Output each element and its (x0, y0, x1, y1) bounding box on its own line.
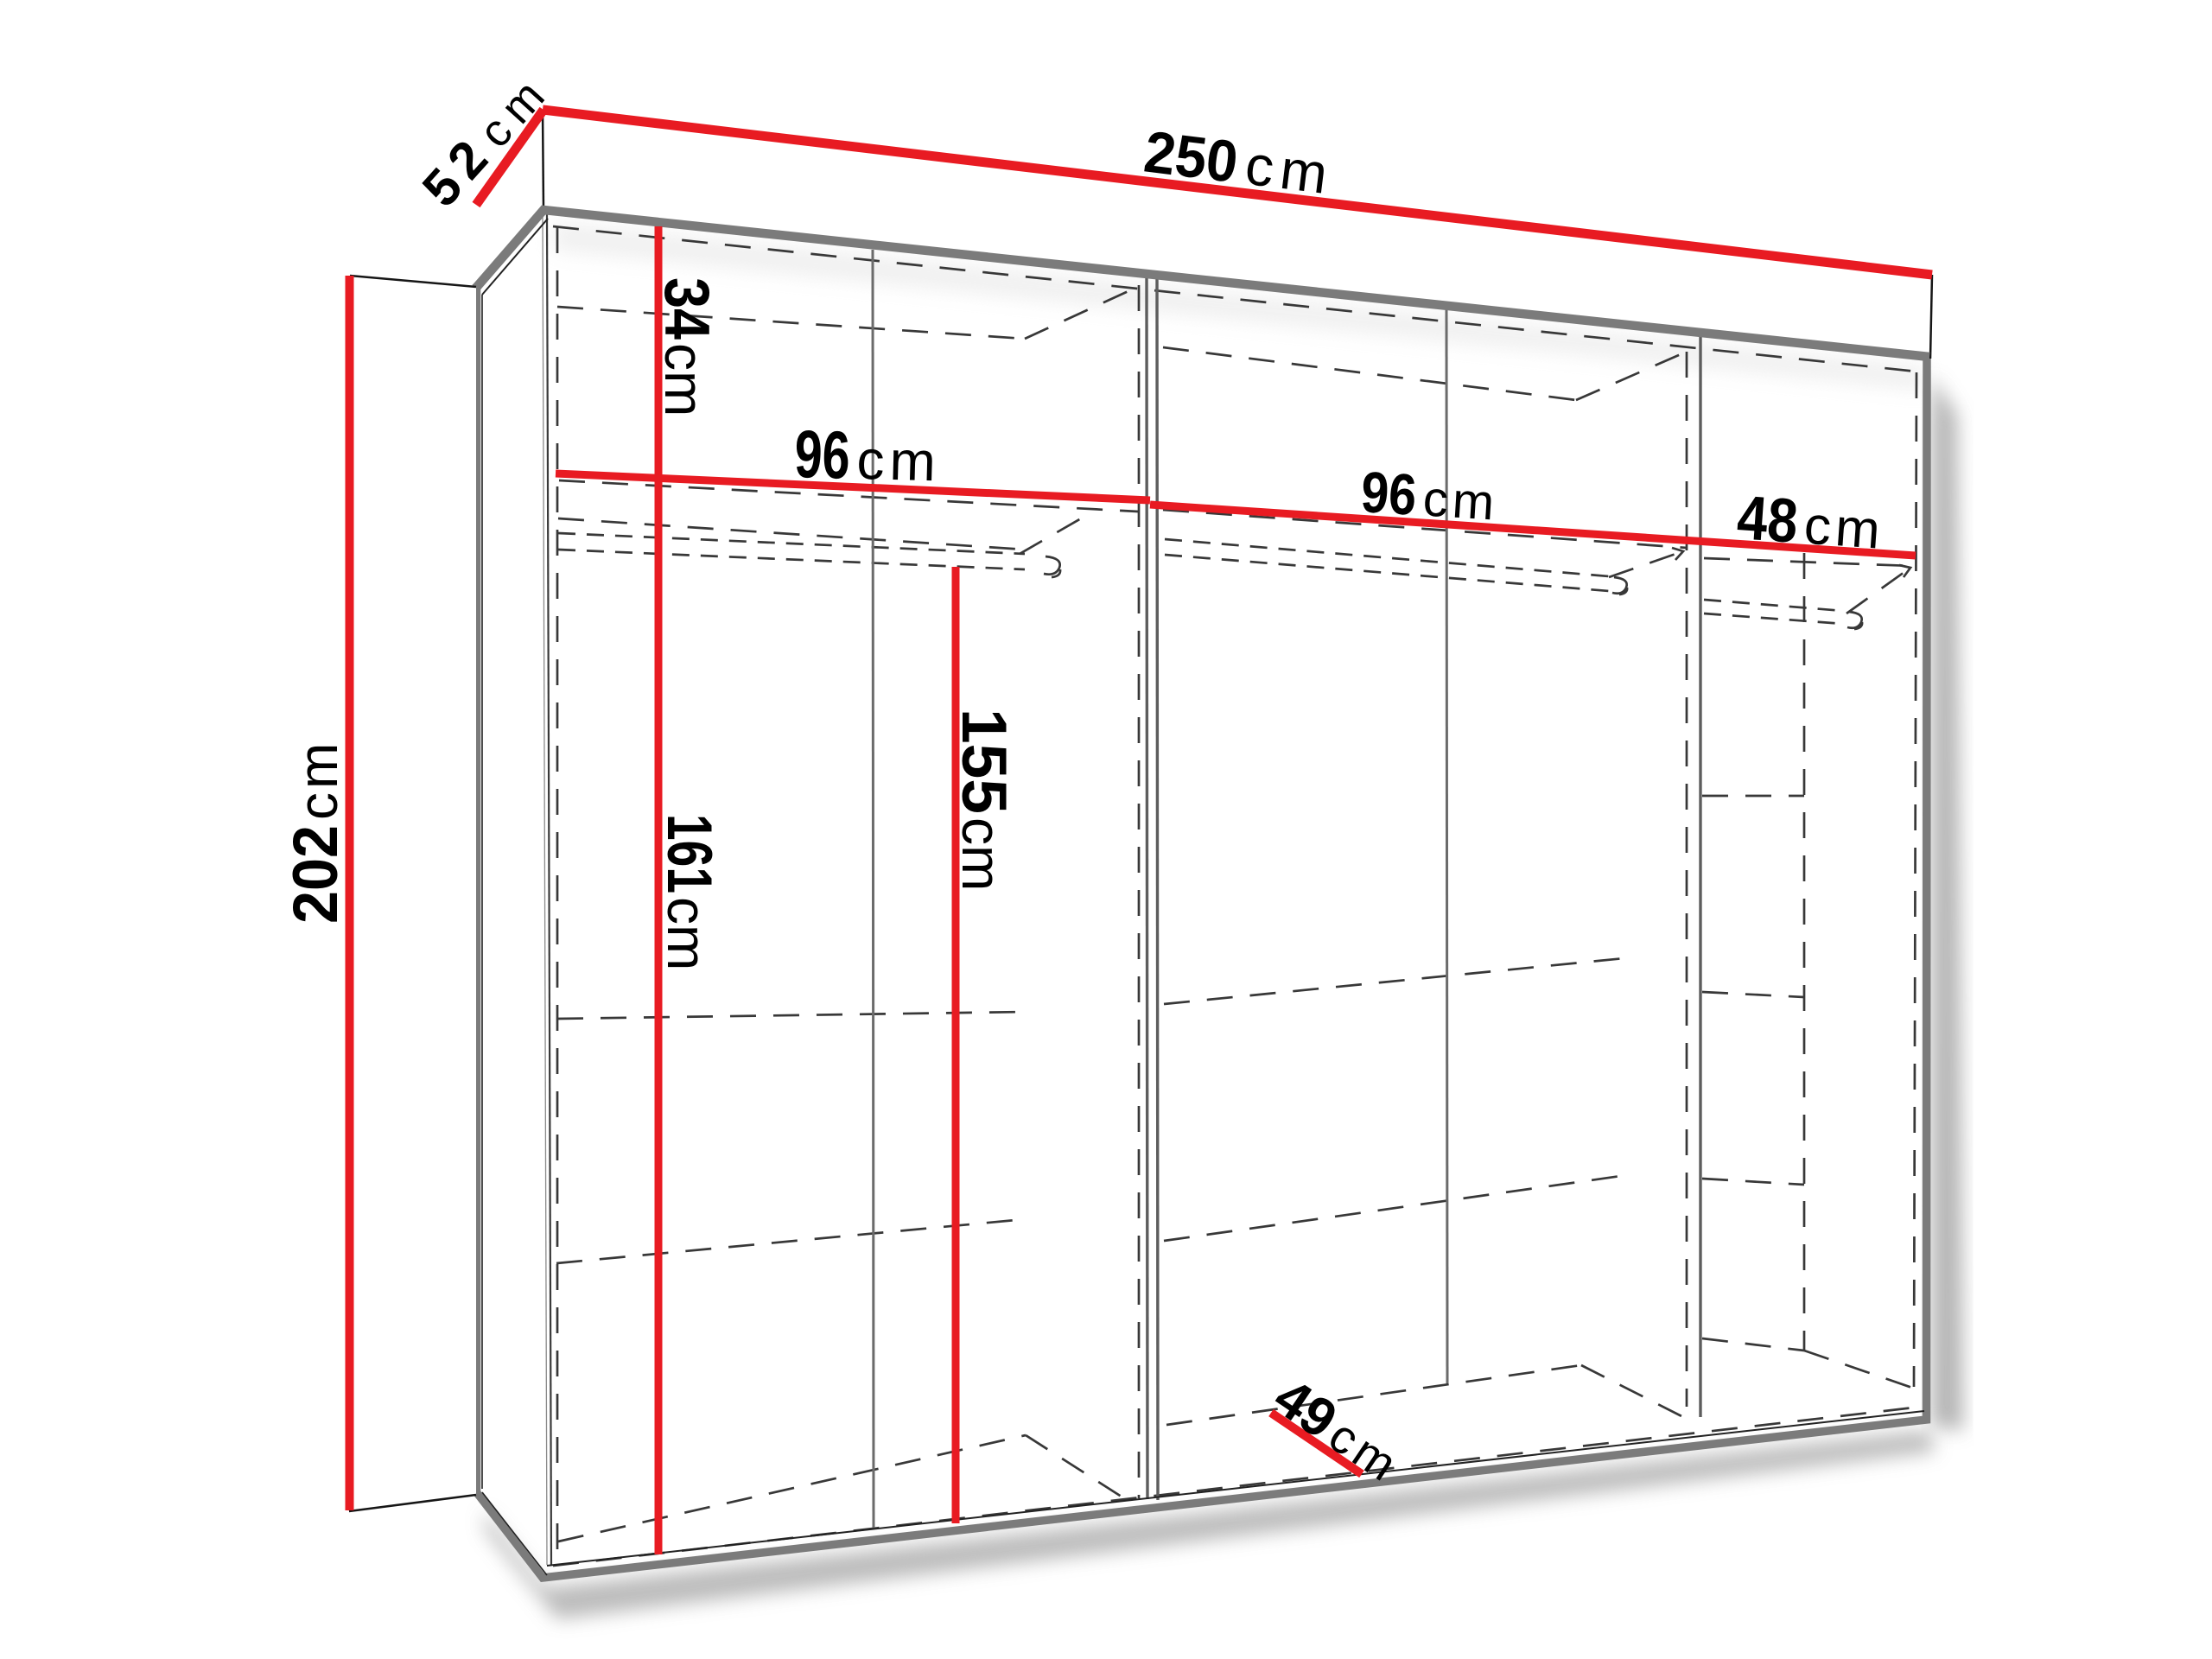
svg-text:161cm: 161cm (654, 814, 724, 970)
svg-text:34cm: 34cm (652, 277, 721, 416)
svg-text:155cm: 155cm (949, 709, 1019, 891)
svg-text:202cm: 202cm (281, 740, 351, 924)
